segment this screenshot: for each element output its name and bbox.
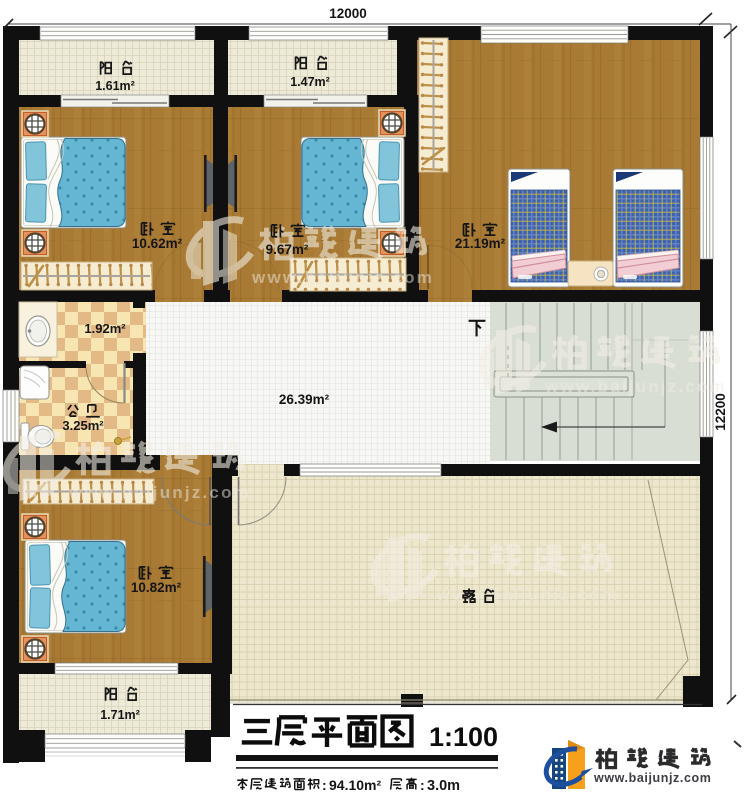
svg-text:94.10m²: 94.10m² [329,777,381,793]
svg-text:1:100: 1:100 [429,722,498,752]
svg-text:26.39m²: 26.39m² [279,392,330,407]
svg-text:10.62m²: 10.62m² [132,236,183,251]
svg-text:21.19m²: 21.19m² [455,236,506,251]
svg-text:www.baijunjz.com: www.baijunjz.com [593,771,711,785]
svg-text:12000: 12000 [329,6,367,21]
svg-text:1.71m²: 1.71m² [100,708,140,722]
svg-text:1.92m²: 1.92m² [84,321,126,336]
svg-text:1.47m²: 1.47m² [290,75,330,89]
svg-text::: : [420,777,425,793]
svg-text:1.61m²: 1.61m² [95,79,135,93]
svg-text:9.67m²: 9.67m² [266,242,309,257]
svg-text:3.25m²: 3.25m² [62,418,104,433]
svg-text::: : [322,777,327,793]
svg-text:10.82m²: 10.82m² [131,580,182,595]
svg-text:3.0m: 3.0m [427,778,460,794]
svg-text:12200: 12200 [713,393,728,431]
